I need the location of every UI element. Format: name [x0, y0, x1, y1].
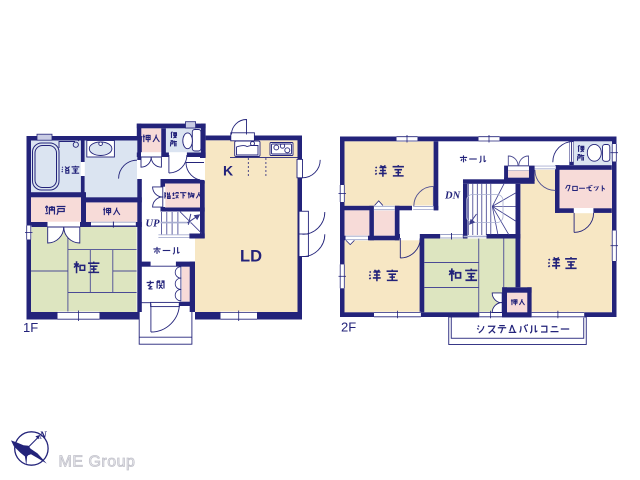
svg-text:1F: 1F	[23, 320, 38, 335]
svg-text:LD: LD	[240, 248, 262, 266]
svg-text:N: N	[39, 431, 48, 442]
svg-text:ME Group: ME Group	[59, 454, 136, 471]
svg-text:2F: 2F	[341, 320, 356, 335]
svg-text:DN: DN	[444, 191, 461, 202]
svg-text:UP: UP	[146, 219, 161, 230]
svg-text:K: K	[223, 163, 233, 179]
